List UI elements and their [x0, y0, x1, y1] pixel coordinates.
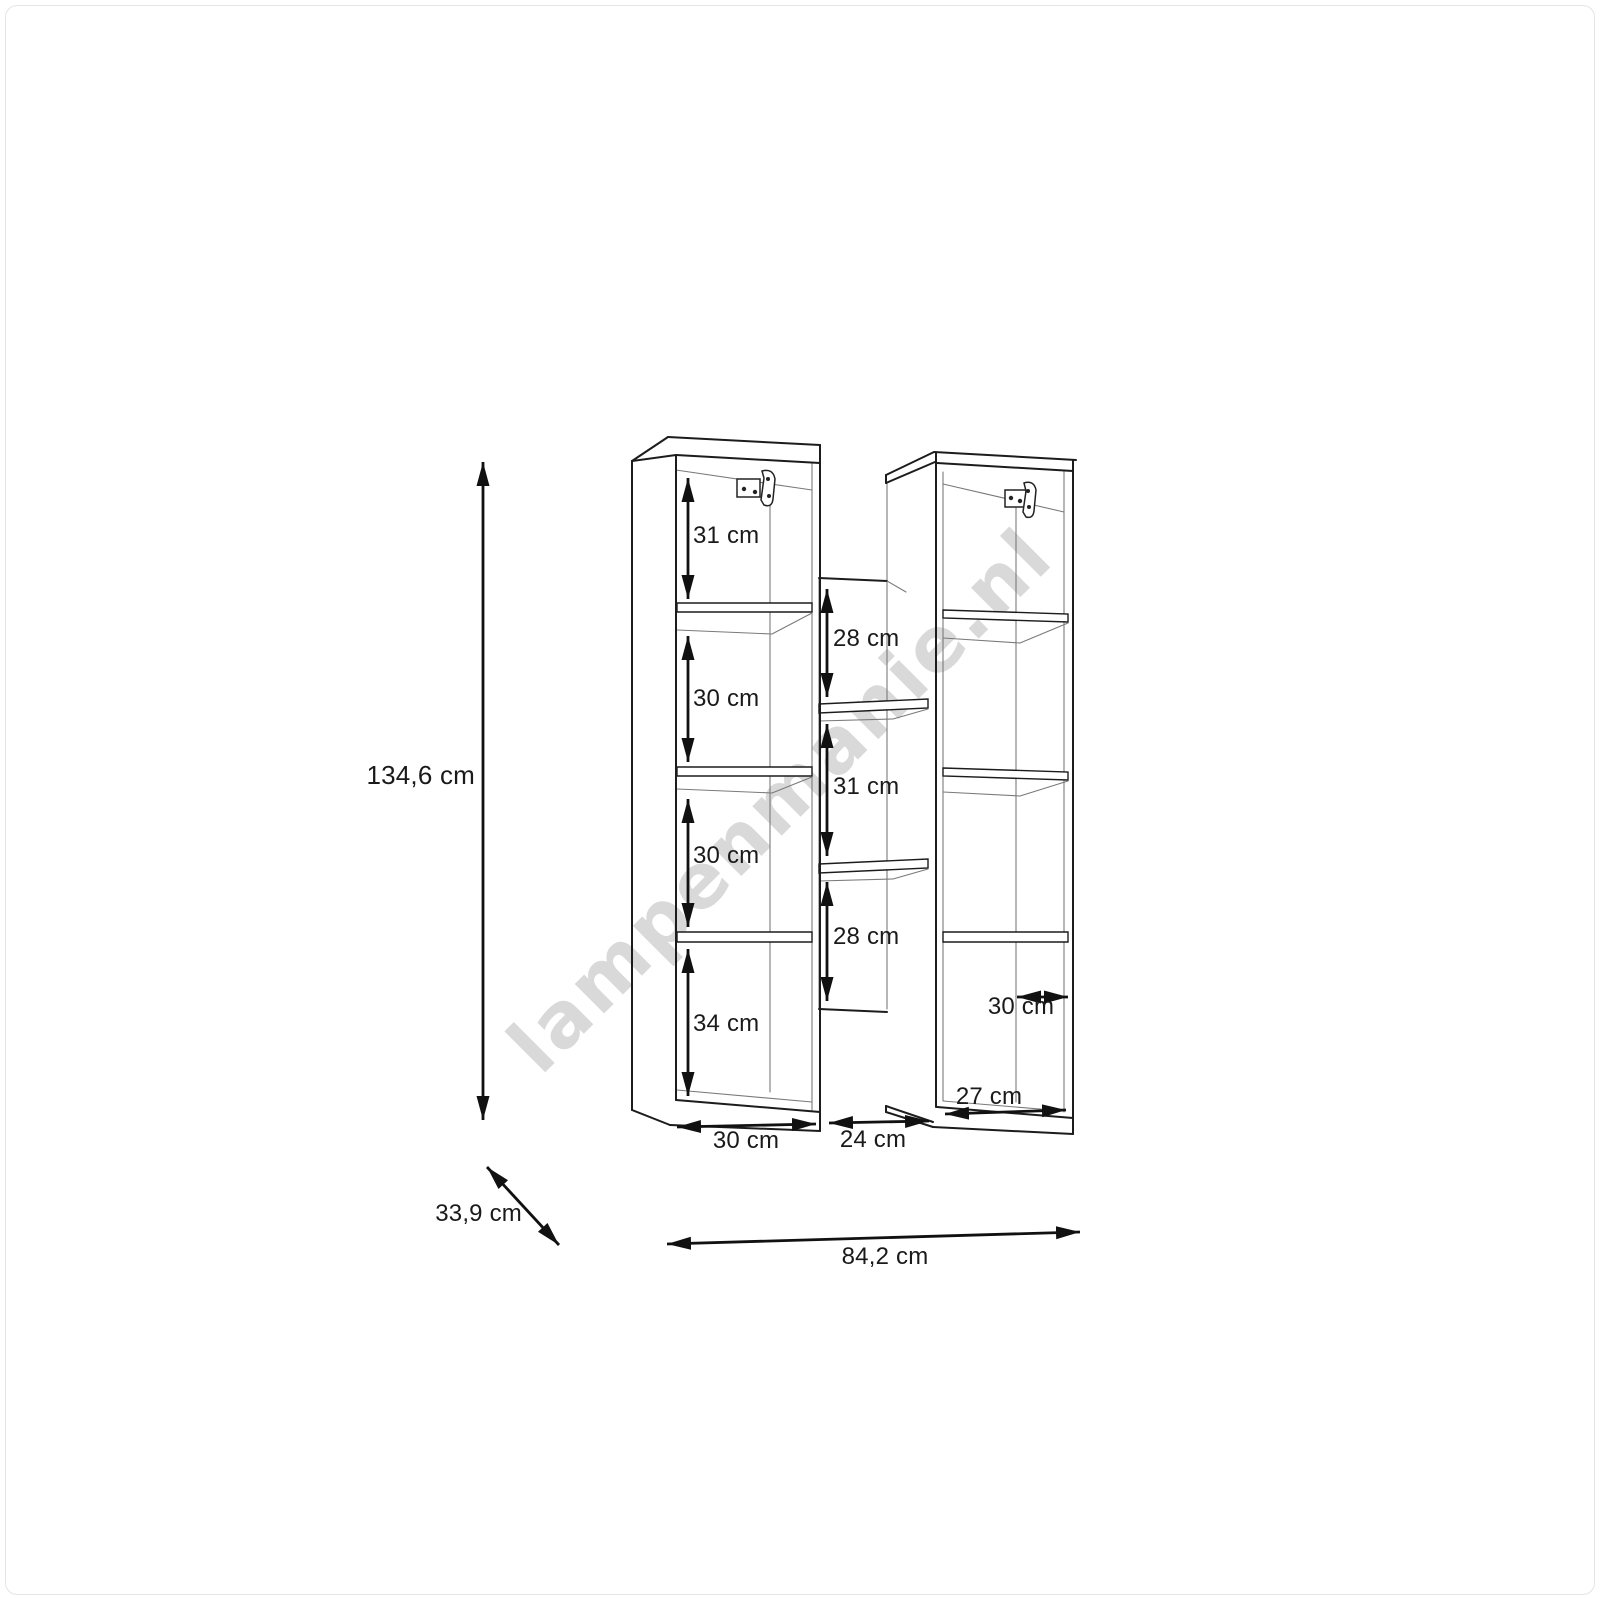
- middle-width-label: 24 cm: [840, 1128, 906, 1152]
- middle-compartment-3-label: 28 cm: [833, 925, 899, 949]
- middle-shelf-2: [819, 859, 928, 873]
- dimension-diagram: lampenmanie.nl: [0, 0, 1600, 1600]
- right-shelf-1: [943, 610, 1068, 622]
- left-compartment-2-label: 30 cm: [693, 687, 759, 711]
- left-shelf-3: [677, 932, 812, 942]
- shelf-unit-line-drawing: [0, 0, 1600, 1600]
- right-shelf-3: [943, 932, 1068, 942]
- right-shelf-2: [943, 768, 1068, 780]
- left-shelf-1: [677, 603, 812, 612]
- left-width-label: 30 cm: [713, 1129, 779, 1153]
- middle-width-arrow: [829, 1121, 929, 1123]
- middle-compartment-1-label: 28 cm: [833, 627, 899, 651]
- middle-compartment-2-label: 31 cm: [833, 775, 899, 799]
- wall-bracket-icon-right: [1005, 482, 1036, 517]
- overall-height-label: 134,6 cm: [366, 762, 475, 788]
- right-bottom-depth-arrow: [945, 1110, 1066, 1114]
- overall-width-label: 84,2 cm: [842, 1245, 929, 1269]
- left-shelf-2: [677, 767, 812, 776]
- right-inner-width-label: 30 cm: [988, 995, 1054, 1019]
- middle-shelf-1: [819, 699, 928, 713]
- right-bottom-depth-label: 27 cm: [956, 1085, 1022, 1109]
- wall-bracket-icon-left: [737, 470, 775, 505]
- left-compartment-1-label: 31 cm: [693, 524, 759, 548]
- dimension-arrows: [483, 462, 1080, 1245]
- overall-depth-label: 33,9 cm: [435, 1202, 522, 1226]
- left-compartment-3-label: 30 cm: [693, 844, 759, 868]
- left-compartment-4-label: 34 cm: [693, 1012, 759, 1036]
- right-column-drawing: [886, 452, 1076, 1134]
